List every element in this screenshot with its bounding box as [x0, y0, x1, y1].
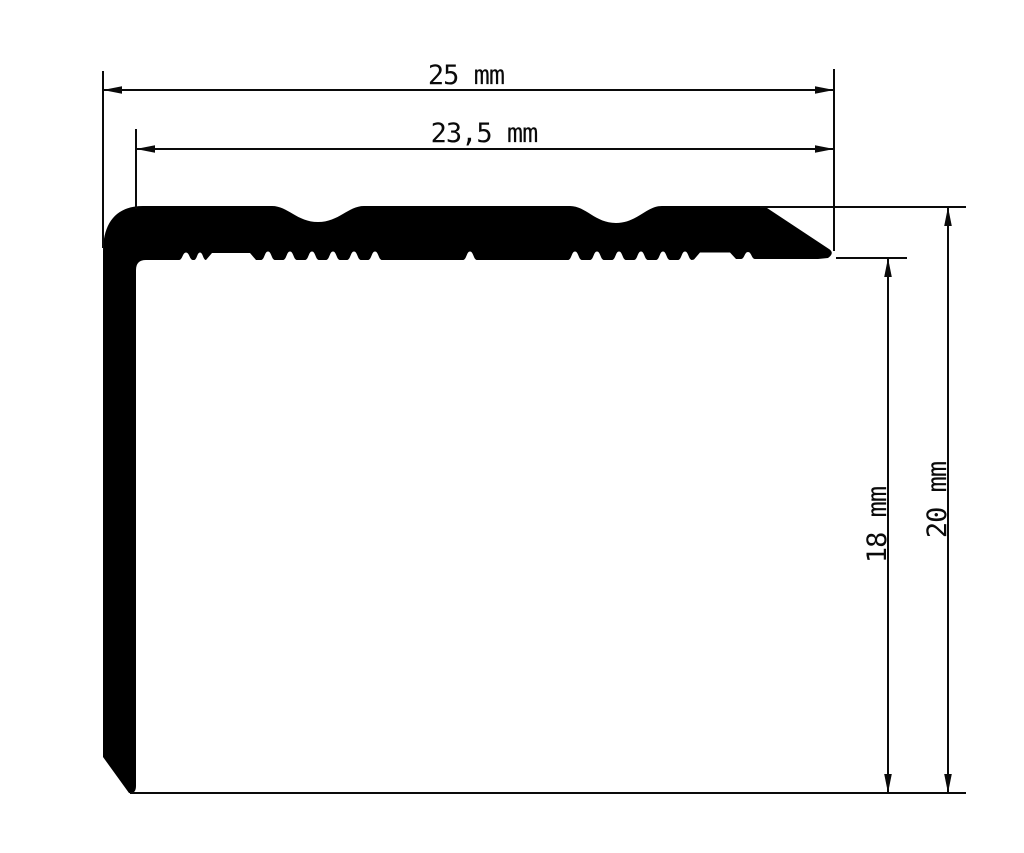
dim-label-height-outer: 20 mm	[922, 462, 953, 538]
profile-cross-section-shape	[103, 206, 832, 793]
dimension-arrowheads	[103, 86, 952, 793]
dim-label-width-inner: 23,5 mm	[431, 118, 538, 149]
arrow-down-icon	[944, 774, 952, 793]
extension-lines	[103, 69, 966, 793]
dim-label-width-outer: 25 mm	[428, 60, 504, 91]
arrow-up-icon	[944, 207, 952, 226]
arrow-right-icon	[815, 86, 834, 94]
arrow-down-icon	[884, 774, 892, 793]
arrow-right-icon	[815, 145, 834, 153]
profile-drawing: 25 mm 23,5 mm 18 mm 20 mm	[0, 0, 1024, 853]
arrow-left-icon	[103, 86, 122, 94]
dimension-lines	[103, 90, 948, 793]
arrow-left-icon	[136, 145, 155, 153]
technical-drawing-canvas: 25 mm 23,5 mm 18 mm 20 mm	[0, 0, 1024, 853]
dim-label-height-inner: 18 mm	[862, 487, 893, 563]
arrow-up-icon	[884, 258, 892, 277]
